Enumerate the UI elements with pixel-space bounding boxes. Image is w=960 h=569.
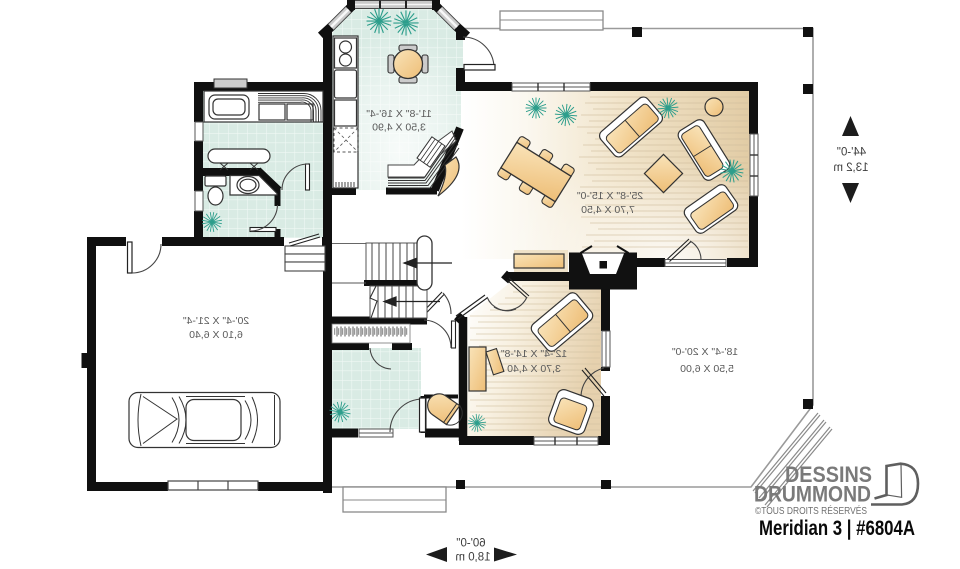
svg-text:18'-4" X 20'-0": 18'-4" X 20'-0" <box>672 346 739 358</box>
svg-text:5,50 X 6,00: 5,50 X 6,00 <box>680 363 734 375</box>
svg-text:11'-8" X 16'-4": 11'-8" X 16'-4" <box>366 108 432 120</box>
svg-text:Meridian 3 | #6804A: Meridian 3 | #6804A <box>759 517 915 540</box>
svg-text:60'-0": 60'-0" <box>456 538 485 550</box>
svg-text:12'-4" X 14'-8": 12'-4" X 14'-8" <box>501 348 568 360</box>
svg-text:©TOUS DROITS RÉSERVÉS: ©TOUS DROITS RÉSERVÉS <box>755 504 867 517</box>
svg-text:44'-0": 44'-0" <box>837 147 866 159</box>
svg-text:20'-4" X 21'-4": 20'-4" X 21'-4" <box>183 315 250 327</box>
svg-text:7,70 X 4,50: 7,70 X 4,50 <box>581 204 635 216</box>
svg-text:3,50 X 4,90: 3,50 X 4,90 <box>372 122 426 134</box>
svg-text:DRUMMOND: DRUMMOND <box>754 482 871 507</box>
svg-text:13,2 m: 13,2 m <box>833 162 868 174</box>
svg-text:3,70 X 4,40: 3,70 X 4,40 <box>507 363 561 375</box>
svg-text:6,10 X 6,40: 6,10 X 6,40 <box>189 329 243 341</box>
svg-text:18,0 m: 18,0 m <box>455 552 490 564</box>
svg-text:25'-8" X 15'-0": 25'-8" X 15'-0" <box>577 190 644 202</box>
